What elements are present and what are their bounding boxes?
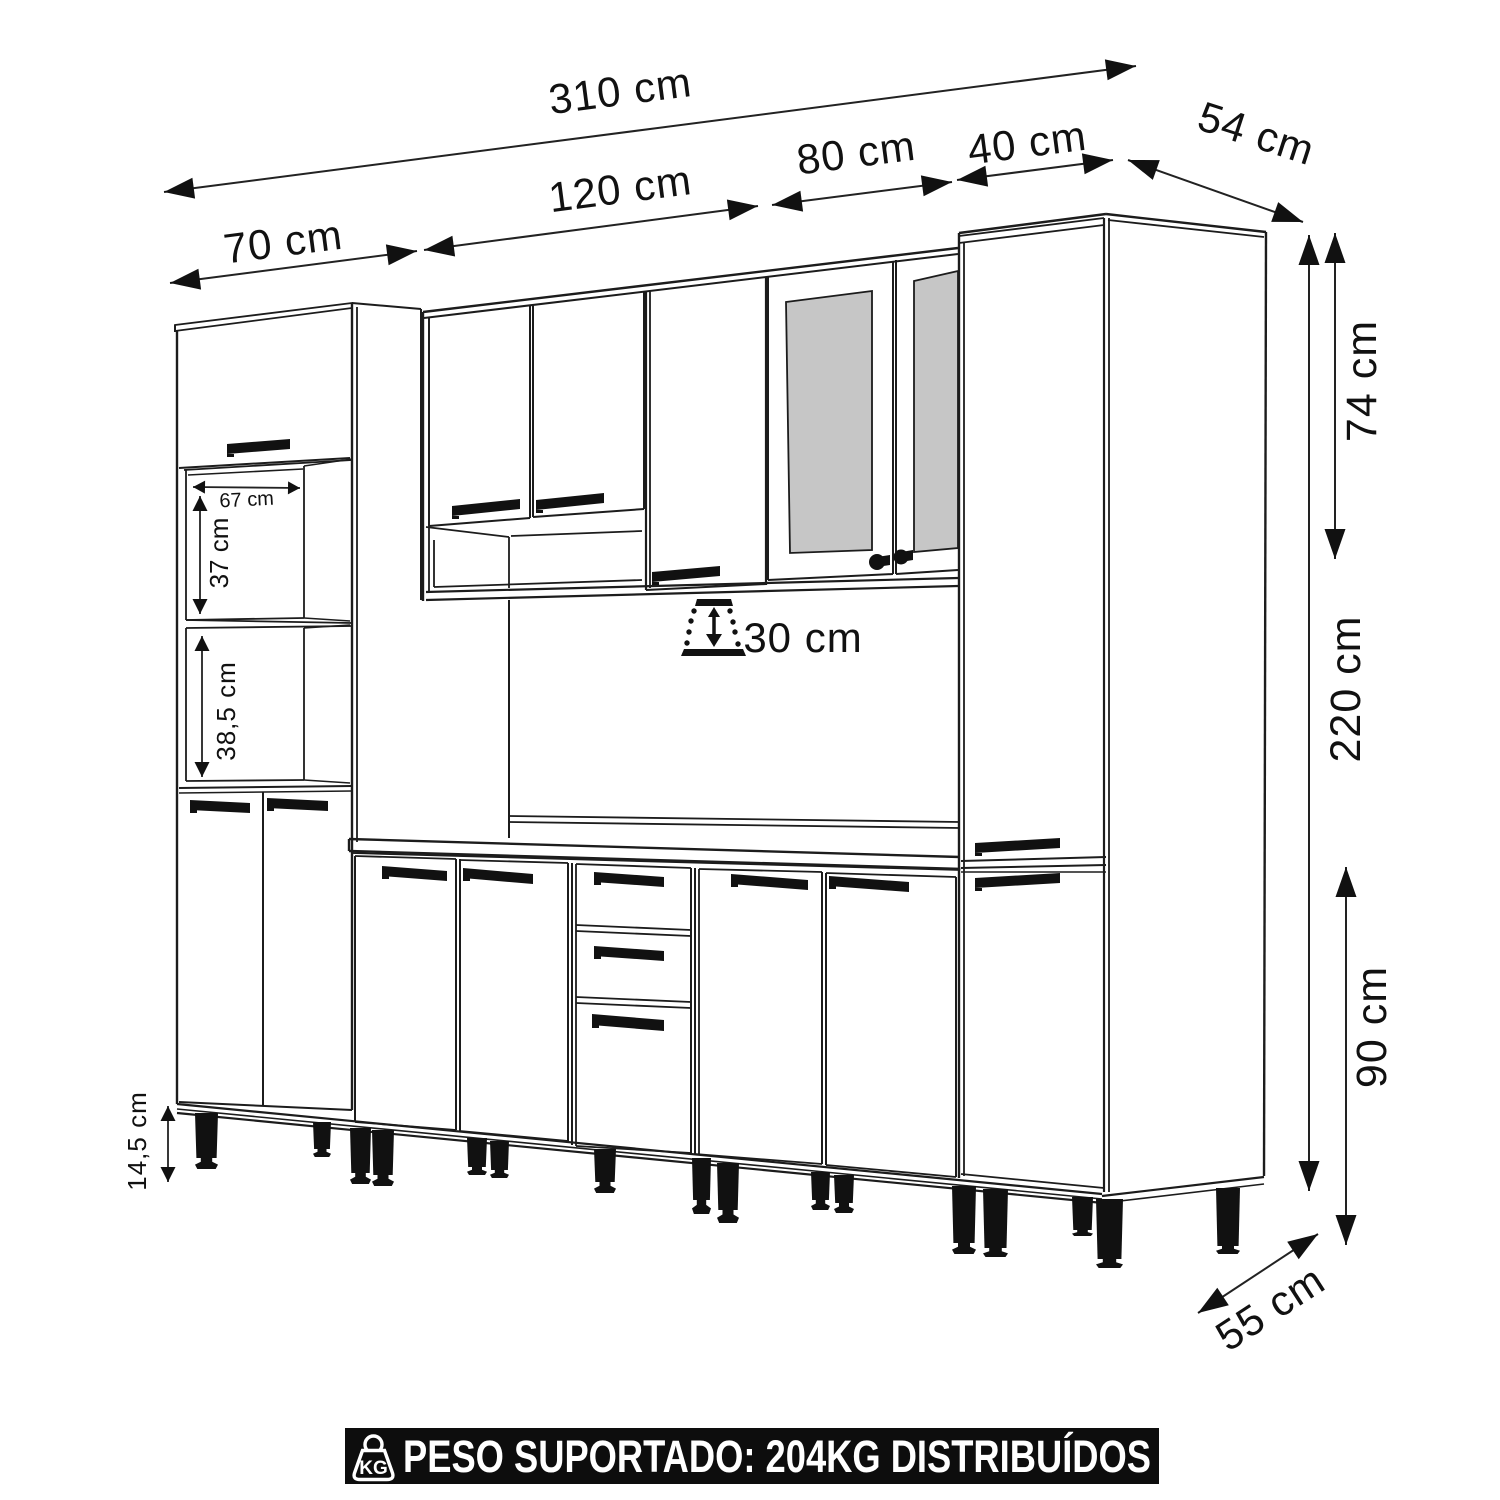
svg-text:30 cm: 30 cm <box>743 614 862 661</box>
svg-text:220 cm: 220 cm <box>1322 615 1370 762</box>
svg-text:37 cm: 37 cm <box>204 518 234 589</box>
svg-text:74 cm: 74 cm <box>1338 320 1386 442</box>
svg-text:90 cm: 90 cm <box>1348 966 1396 1088</box>
svg-text:KG: KG <box>359 1458 388 1479</box>
svg-text:PESO SUPORTADO: 204KG DISTRIBU: PESO SUPORTADO: 204KG DISTRIBUÍDOS <box>403 1431 1151 1482</box>
svg-text:67 cm: 67 cm <box>219 488 275 513</box>
svg-text:14,5 cm: 14,5 cm <box>122 1091 152 1191</box>
svg-text:38,5 cm: 38,5 cm <box>211 661 241 761</box>
